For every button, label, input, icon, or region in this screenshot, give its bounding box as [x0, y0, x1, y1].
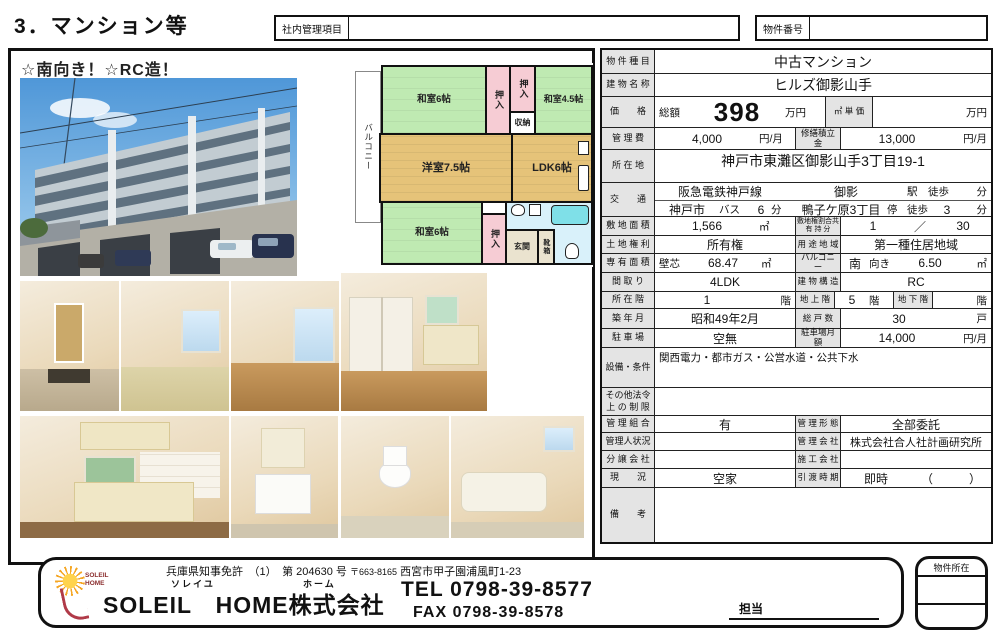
floor-value: 1 [655, 292, 759, 308]
row-layout: 間 取 り 4LDK 建 物 構 造 RC [602, 273, 991, 292]
row-manager: 管理人状況 管 理 会 社 株式会社合人社計画研究所 [602, 433, 991, 451]
built-value: 昭和49年2月 [655, 309, 795, 328]
land-right-label: 土 地 権 利 [602, 236, 655, 253]
association-label: 管 理 組 合 [602, 416, 655, 432]
transport-stop: 鴨子ケ原3丁目 [795, 201, 887, 218]
exclusive-area-value: 68.47 [685, 254, 761, 272]
balcony-area-unit: ㎡ [961, 254, 991, 272]
transport-line1: 阪急電鉄神戸線 御影 駅 徒歩 分 [655, 183, 991, 201]
floorplan-toilet-icon [565, 243, 579, 259]
parking-monthly-value: 14,000 [841, 329, 953, 347]
structure-value: RC [841, 273, 991, 291]
license-line: 兵庫県知事免許 （1） 第 204630 号 〒663-8165 西宮市甲子園浦… [166, 563, 521, 579]
balcony-facing: 向き [869, 254, 899, 272]
repair-fund-value: 13,000 [841, 128, 953, 149]
developer-value [655, 451, 795, 468]
listing-sheet: 3．マンション等 社内管理項目 物件番号 ☆南向き！☆RC造！ [0, 0, 1000, 631]
transport-min-unit3: 分 [957, 202, 991, 217]
structure-label: 建 物 構 造 [795, 273, 841, 291]
row-mgmt-fee: 管 理 費 4,000 円/月 修繕積立金 13,000 円/月 [602, 128, 991, 150]
floorplan-genkan: 玄関 [505, 229, 539, 265]
mgmt-form-label: 管 理 形 態 [795, 416, 841, 432]
floors-above-value: 5 [835, 292, 869, 308]
floorplan-balcony: バルコニー [355, 71, 381, 223]
floorplan-room-yoshitsu: 洋室7.5帖 [379, 133, 513, 203]
remarks-label: 備 考 [602, 488, 655, 542]
location-label: 所 在 地 [602, 150, 655, 182]
row-exclusive-area: 専 有 面 積 壁芯 68.47 ㎡ バルコニー 南 向き 6.50 ㎡ [602, 254, 991, 273]
developer-label: 分 譲 会 社 [602, 451, 655, 468]
property-location-label: 物件所在 [918, 561, 985, 574]
floorplan: バルコニー 和室6帖 押入 押入 収納 和室4.5帖 洋室7.5帖 LDK6帖 … [355, 63, 593, 267]
page-title: 3．マンション等 [14, 10, 189, 40]
floorplan-oshiire-2: 押入 [509, 65, 536, 113]
row-location: 所 在 地 神戸市東灘区御影山手3丁目19-1 [602, 150, 991, 183]
photo-washbasin [231, 416, 338, 538]
photo-building-exterior [20, 78, 297, 276]
transport-walk2-label: 徒歩 [907, 202, 937, 217]
stamp-box-divider-2 [918, 603, 985, 605]
manager-label: 管理人状況 [602, 433, 655, 450]
company-name: SOLEIL HOME株式会社 [103, 586, 385, 620]
association-value: 有 [655, 416, 795, 432]
floor-unit: 階 [759, 292, 795, 308]
photo-living-room [231, 281, 339, 411]
price-label: 価 格 [602, 97, 655, 127]
facilities-label: 設備・条件 [602, 348, 655, 387]
floorplan-washbasin-icon [511, 204, 525, 216]
row-built: 築 年 月 昭和49年2月 総 戸 数 30 戸 [602, 309, 991, 329]
total-units-label: 総 戸 数 [795, 309, 841, 328]
property-number-value [810, 17, 986, 39]
land-area-label: 敷 地 面 積 [602, 217, 655, 235]
transport-bus-label: バス [719, 202, 751, 217]
floorplan-oshiire-3: 押入 [481, 213, 507, 265]
property-number-label: 物件番号 [757, 17, 810, 39]
handover-paren: （ ） [911, 469, 991, 487]
builder-label: 施 工 会 社 [795, 451, 841, 468]
row-land-right: 土 地 権 利 所有権 用 途 地 域 第一種住居地域 [602, 236, 991, 254]
land-area-unit: ㎡ [759, 217, 795, 235]
layout-value: 4LDK [655, 273, 795, 291]
floors-above-label: 地 上 階 [795, 292, 835, 308]
exclusive-area-method: 壁芯 [655, 254, 685, 272]
price-sqm-unit: 万円 [873, 97, 991, 127]
floorplan-oshiire-1: 押入 [485, 65, 511, 135]
floors-below-unit: 階 [933, 292, 991, 308]
floorplan-stove-icon [578, 141, 589, 155]
row-transport: 交 通 阪急電鉄神戸線 御影 駅 徒歩 分 神戸市 バス 6 分 鴨子ケ原3丁目… [602, 183, 991, 217]
handover-label: 引 渡 時 期 [795, 469, 841, 487]
row-facilities: 設備・条件 関西電力・都市ガス・公営水道・公共下水 [602, 348, 991, 388]
mgmt-fee-unit: 円/月 [759, 128, 795, 149]
mgmt-fee-value: 4,000 [655, 128, 759, 149]
transport-stop-suffix: 停 [887, 202, 907, 217]
floorplan-bathtub-icon [551, 205, 589, 225]
total-units-value: 30 [841, 309, 957, 328]
other-restrictions-value [655, 388, 991, 415]
headline: ☆南向き！☆RC造！ [21, 56, 179, 80]
repair-fund-label: 修繕積立金 [795, 128, 841, 149]
phone-number: TEL 0798-39-8577 [401, 578, 593, 602]
facilities-value: 関西電力・都市ガス・公営水道・公共下水 [655, 348, 991, 387]
office-address: 西宮市甲子園浦風町1-23 [400, 566, 521, 578]
property-number-box: 物件番号 [755, 15, 988, 41]
property-location-stamp-box: 物件所在 [915, 556, 988, 630]
land-right-value: 所有権 [655, 236, 795, 253]
builder-value [841, 451, 991, 468]
photo-room-and-kitchen [341, 273, 487, 411]
photo-toilet [341, 416, 449, 538]
built-label: 築 年 月 [602, 309, 655, 328]
transport-min-unit1: 分 [965, 184, 991, 199]
internal-management-label: 社内管理項目 [276, 17, 349, 39]
row-status: 現 況 空家 引 渡 時 期 即時 （ ） [602, 469, 991, 488]
land-share-den: 30 [935, 217, 991, 235]
floorplan-storage: 収納 [509, 111, 536, 135]
photo-panel: ☆南向き！☆RC造！ [8, 48, 595, 565]
repair-fund-unit: 円/月 [953, 128, 991, 149]
land-share-label: 敷地権割合共有 持 分 [795, 217, 841, 235]
parking-monthly-unit: 円/月 [953, 329, 991, 347]
mgmt-fee-label: 管 理 費 [602, 128, 655, 149]
floors-below-label: 地 下 階 [893, 292, 933, 308]
building-exterior-illustration [20, 78, 297, 276]
floorplan-shoebox: 靴箱 [539, 229, 555, 265]
price-unit: 万円 [785, 97, 825, 127]
transport-walk-label: 駅 徒歩 [907, 184, 965, 199]
footer-company-box: SOLEILHOME 兵庫県知事免許 （1） 第 204630 号 〒663-8… [38, 557, 904, 628]
row-property-type: 物 件 種 目 中古マンション [602, 50, 991, 74]
floorplan-washer-icon [529, 204, 541, 216]
parking-label: 駐 車 場 [602, 329, 655, 347]
parking-value: 空無 [655, 329, 795, 347]
transport-walk2-min: 3 [937, 203, 957, 217]
other-restrictions-label: その他法令上 の 制 限 [602, 388, 655, 415]
location-value: 神戸市東灘区御影山手3丁目19-1 [655, 150, 991, 182]
zoning-label: 用 途 地 域 [795, 236, 841, 253]
fax-number: FAX 0798-39-8578 [413, 604, 564, 622]
transport-city: 神戸市 [655, 201, 719, 218]
photo-japanese-room [121, 281, 229, 411]
land-share-slash: ／ [905, 217, 935, 235]
balcony-direction: 南 [841, 254, 869, 272]
exclusive-area-unit: ㎡ [761, 254, 795, 272]
row-land-area: 敷 地 面 積 1,566 ㎡ 敷地権割合共有 持 分 1 ／ 30 [602, 217, 991, 236]
manager-value [655, 433, 795, 450]
floorplan-room-washitsu6-top: 和室6帖 [381, 65, 487, 135]
building-name-value: ヒルズ御影山手 [655, 74, 991, 96]
status-label: 現 況 [602, 469, 655, 487]
floorplan-room-washitsu6-bottom: 和室6帖 [381, 201, 483, 265]
stamp-box-divider-1 [918, 575, 985, 577]
floorplan-sink-icon [578, 165, 589, 191]
property-type-label: 物 件 種 目 [602, 50, 655, 73]
zoning-value: 第一種住居地域 [841, 236, 991, 253]
row-association: 管 理 組 合 有 管 理 形 態 全部委託 [602, 416, 991, 433]
photo-bathroom [451, 416, 584, 538]
property-type-value: 中古マンション [655, 50, 991, 73]
land-share-num: 1 [841, 217, 905, 235]
row-remarks: 備 考 [602, 488, 991, 542]
transport-min-unit2: 分 [771, 202, 795, 217]
parking-monthly-label: 駐車場月額 [795, 329, 841, 347]
price-total-label: 総額 [655, 97, 689, 127]
row-parking: 駐 車 場 空無 駐車場月額 14,000 円/月 [602, 329, 991, 348]
row-other-restrictions: その他法令上 の 制 限 [602, 388, 991, 416]
building-name-label: 建 物 名 称 [602, 74, 655, 96]
photo-kitchen [20, 416, 229, 538]
transport-bus-min: 6 [751, 203, 771, 217]
handover-value: 即時 [841, 469, 911, 487]
photo-entrance-hall [20, 281, 119, 411]
row-building-name: 建 物 名 称 ヒルズ御影山手 [602, 74, 991, 97]
total-units-unit: 戸 [957, 309, 991, 328]
floorplan-room-washitsu45: 和室4.5帖 [534, 65, 593, 135]
floors-above-unit: 階 [869, 292, 893, 308]
postal-code: 〒663-8165 [350, 567, 397, 577]
staff-in-charge-line: 担当 [729, 600, 879, 620]
transport-label: 交 通 [602, 183, 655, 216]
transport-rail: 阪急電鉄神戸線 [655, 183, 785, 200]
remarks-value [655, 488, 991, 542]
mgmt-company-value: 株式会社合人社計画研究所 [841, 433, 991, 450]
land-area-value: 1,566 [655, 217, 759, 235]
row-price: 価 格 総額 398 万円 ㎡ 単 価 万円 [602, 97, 991, 128]
row-developer: 分 譲 会 社 施 工 会 社 [602, 451, 991, 469]
status-value: 空家 [655, 469, 795, 487]
mgmt-company-label: 管 理 会 社 [795, 433, 841, 450]
exclusive-area-label: 専 有 面 積 [602, 254, 655, 272]
logo-swoosh-icon [60, 584, 90, 623]
internal-management-box: 社内管理項目 [274, 15, 740, 41]
layout-label: 間 取 り [602, 273, 655, 291]
row-floor: 所 在 階 1 階 地 上 階 5 階 地 下 階 階 [602, 292, 991, 309]
price-sqm-label: ㎡ 単 価 [825, 97, 873, 127]
spec-table: 物 件 種 目 中古マンション 建 物 名 称 ヒルズ御影山手 価 格 総額 3… [600, 48, 993, 544]
internal-management-value [349, 17, 738, 39]
price-value: 398 [689, 97, 785, 127]
transport-station: 御影 [785, 183, 907, 200]
floor-label: 所 在 階 [602, 292, 655, 308]
balcony-label: バルコニー [795, 254, 841, 272]
balcony-area-value: 6.50 [899, 254, 961, 272]
transport-line2: 神戸市 バス 6 分 鴨子ケ原3丁目 停 徒歩 3 分 [655, 201, 991, 218]
mgmt-form-value: 全部委託 [841, 416, 991, 432]
